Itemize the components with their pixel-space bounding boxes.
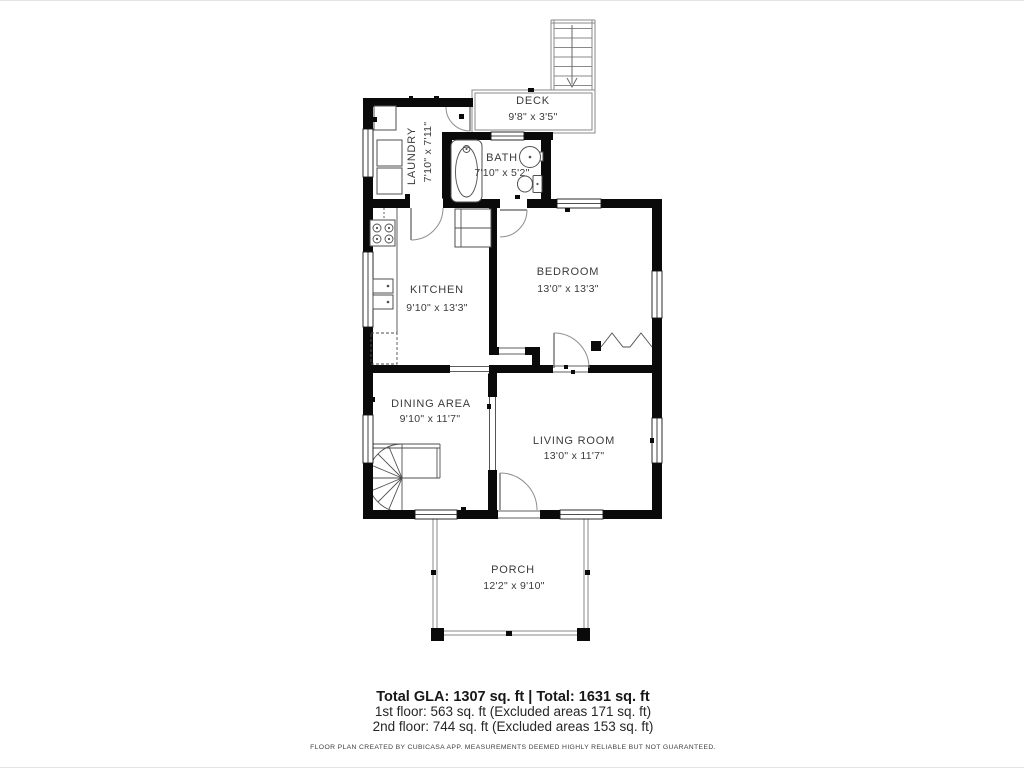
stairs-down-arrow-icon <box>567 25 577 87</box>
room-dims-bath: 7'10" x 5'2" <box>474 167 529 179</box>
room-dims-living: 13'0" x 11'7" <box>544 450 605 462</box>
room-dims-porch: 12'2" x 9'10" <box>483 580 545 592</box>
windows <box>363 129 662 519</box>
second-floor-text: 2nd floor: 744 sq. ft (Excluded areas 15… <box>373 719 654 734</box>
kitchen-sink <box>373 279 393 309</box>
porch-post <box>577 628 590 641</box>
room-label-kitchen: KITCHEN <box>410 284 464 296</box>
bath-wall-right <box>541 132 551 208</box>
dining-living-stub-top <box>488 373 497 397</box>
room-label-bath: BATH <box>486 152 518 164</box>
door-swing <box>554 333 589 368</box>
window <box>415 510 457 519</box>
window <box>363 415 373 463</box>
laundry-counter <box>374 106 396 130</box>
refrigerator-cabinet <box>455 209 491 247</box>
window <box>363 252 373 327</box>
dryer <box>377 168 402 194</box>
closet-stub <box>591 341 601 351</box>
room-dims-dining: 9'10" x 11'7" <box>400 413 461 425</box>
total-gla-text: Total GLA: 1307 sq. ft | Total: 1631 sq.… <box>376 689 650 705</box>
room-label-porch: PORCH <box>491 564 535 576</box>
porch-post <box>431 628 444 641</box>
room-label-laundry: LAUNDRY <box>406 127 418 185</box>
cased-opening-kitchen-dining <box>450 365 489 374</box>
door-swing <box>500 473 537 510</box>
door-swing <box>500 210 527 237</box>
kitchen-dining-wall <box>363 365 450 373</box>
room-dims-bedroom: 13'0" x 13'3" <box>537 283 599 295</box>
closet-bifold-doors <box>601 333 652 347</box>
room-label-deck: DECK <box>516 95 550 107</box>
spiral-staircase <box>368 444 440 512</box>
dining-living-stub-bottom <box>488 470 497 510</box>
window <box>557 199 601 208</box>
summary-block: Total GLA: 1307 sq. ft | Total: 1631 sq.… <box>310 689 716 751</box>
window <box>652 271 662 318</box>
floor-plan-page: DECK 9'8" x 3'5" LAUNDRY 7'10" x 7'11" B… <box>0 0 1024 768</box>
window <box>560 510 603 519</box>
door-swing <box>411 208 443 240</box>
room-dims-deck: 9'8" x 3'5" <box>508 111 557 123</box>
room-label-living: LIVING ROOM <box>533 435 615 447</box>
door-swing <box>446 107 470 131</box>
stove <box>370 220 395 246</box>
floor-plan-canvas: DECK 9'8" x 3'5" LAUNDRY 7'10" x 7'11" B… <box>0 0 1024 768</box>
first-floor-text: 1st floor: 563 sq. ft (Excluded areas 17… <box>375 704 651 719</box>
window <box>363 129 373 177</box>
room-label-dining: DINING AREA <box>391 398 471 410</box>
exterior-wall-right <box>652 199 662 519</box>
bedroom-closet-wall-v <box>532 347 540 368</box>
bath-sink <box>520 147 544 168</box>
disclaimer-text: FLOOR PLAN CREATED BY CUBICASA APP. MEAS… <box>310 744 716 751</box>
room-dims-laundry: 7'10" x 7'11" <box>422 122 434 183</box>
room-dims-kitchen: 9'10" x 13'3" <box>406 302 468 314</box>
dishwasher <box>371 333 397 364</box>
washer <box>377 140 402 166</box>
window <box>491 132 524 140</box>
room-label-bedroom: BEDROOM <box>537 266 599 278</box>
exterior-stairs <box>551 20 595 90</box>
